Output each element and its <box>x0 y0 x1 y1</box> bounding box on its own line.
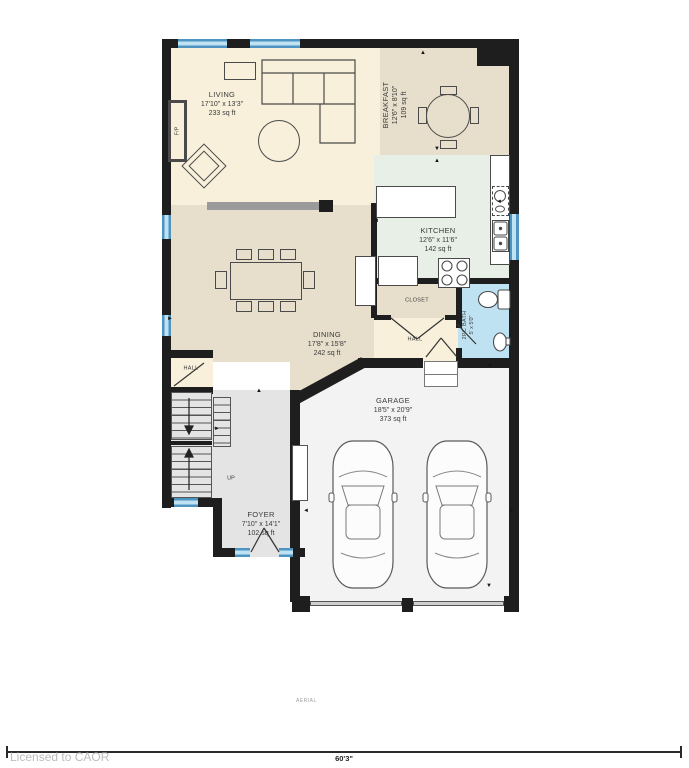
measure-arrow-icon: ▼ <box>434 146 440 152</box>
living-label: LIVING 17'10" x 13'3" 233 sq ft <box>201 90 243 118</box>
plan-detail-overlay <box>0 0 689 768</box>
scale-bar-tick-left <box>6 746 8 758</box>
breakfast-label: BREAKFAST 12'6" x 8'10" 109 sq ft <box>381 82 409 129</box>
hall-upper-label: HALL <box>408 336 423 343</box>
measure-arrow-icon: ▲ <box>420 50 426 56</box>
toilet <box>479 290 511 309</box>
measure-arrow-icon: ◄ <box>373 218 379 224</box>
bath-label: 2PC BATH 5' x 5'0" <box>462 311 476 340</box>
kitchen-label: KITCHEN 12'6" x 11'6" 142 sq ft <box>419 226 457 254</box>
bath-sink <box>494 333 511 351</box>
scale-label: 60'3" <box>332 754 356 763</box>
wall-garage-diagonal <box>296 362 364 399</box>
measure-arrow-icon: ◄ <box>303 508 309 514</box>
car-right <box>423 441 491 588</box>
stove-burners <box>442 261 467 285</box>
hall-lower-label: HALL <box>184 365 199 372</box>
measure-arrow-icon: ▲ <box>434 158 440 164</box>
measure-arrow-icon: ▼ <box>486 583 492 589</box>
sink-detail <box>494 222 507 250</box>
measure-arrow-icon: ► <box>509 508 515 514</box>
car-left <box>329 441 397 588</box>
measure-arrow-icon: ► <box>167 316 173 322</box>
measure-arrow-icon: ▲ <box>487 362 493 368</box>
aerial-watermark: AERIAL <box>296 698 317 704</box>
stairs-arrows <box>185 398 193 490</box>
measure-arrow-icon: ◄ <box>496 199 502 205</box>
stairs-up-label: UP <box>227 475 235 482</box>
scale-bar-tick-right <box>680 746 682 758</box>
garage-label: GARAGE 18'5" x 20'9" 373 sq ft <box>374 396 412 424</box>
measure-arrow-icon: ▲ <box>256 388 262 394</box>
closet-label: CLOSET <box>405 297 429 304</box>
floor-plan: F/P <box>0 0 689 768</box>
dining-label: DINING 17'8" x 15'8" 242 sq ft <box>308 330 346 358</box>
measure-arrow-icon: ► <box>214 426 220 432</box>
sectional-sofa <box>262 60 355 143</box>
license-text: Licensed to CAOR <box>10 750 109 764</box>
foyer-label: FOYER 7'10" x 14'1" 102 sq ft <box>242 510 280 538</box>
